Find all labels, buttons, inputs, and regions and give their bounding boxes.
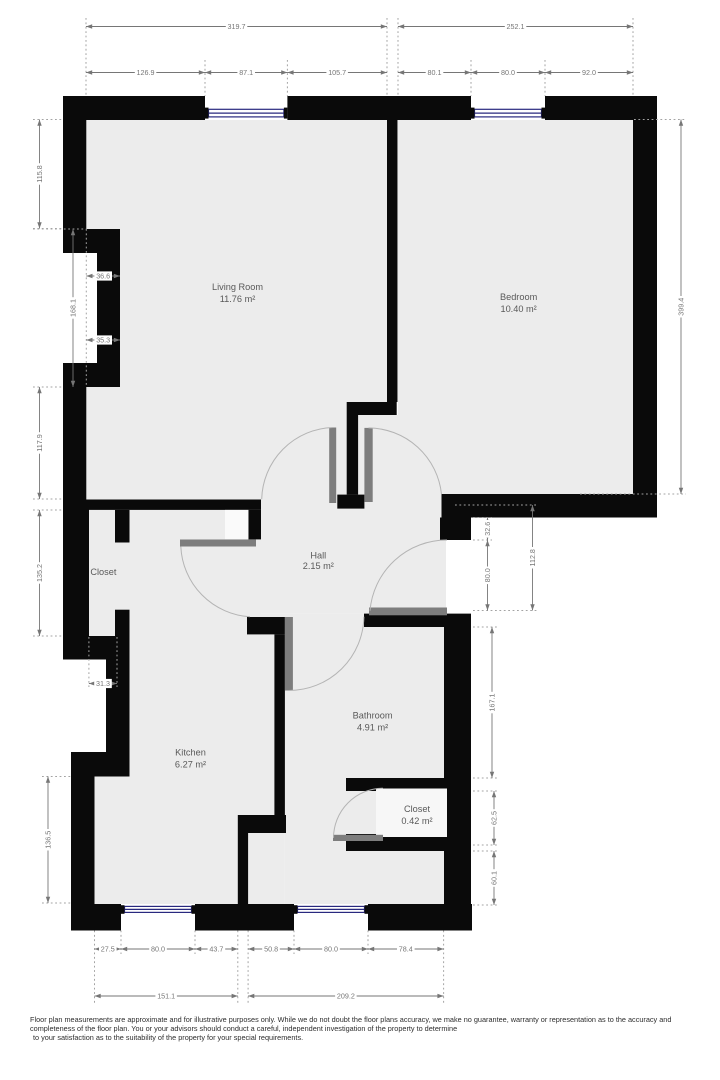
svg-text:167.1: 167.1 xyxy=(488,694,497,712)
svg-text:319.7: 319.7 xyxy=(228,22,246,31)
svg-text:80.0: 80.0 xyxy=(324,945,338,954)
svg-text:80.0: 80.0 xyxy=(483,568,492,582)
svg-text:117.9: 117.9 xyxy=(35,434,44,451)
svg-text:Closet: Closet xyxy=(90,567,116,577)
svg-text:115.8: 115.8 xyxy=(35,165,44,182)
svg-text:92.0: 92.0 xyxy=(582,68,596,77)
svg-text:135.2: 135.2 xyxy=(35,564,44,582)
svg-text:Floor plan measurements are ap: Floor plan measurements are approximate … xyxy=(30,1015,671,1024)
svg-text:Living Room: Living Room xyxy=(212,282,263,292)
svg-text:80.1: 80.1 xyxy=(428,68,442,77)
svg-text:4.91 m²: 4.91 m² xyxy=(357,723,388,733)
svg-text:60.1: 60.1 xyxy=(490,871,499,885)
svg-text:112.8: 112.8 xyxy=(528,549,537,566)
svg-text:completeness of the floor plan: completeness of the floor plan. You or y… xyxy=(30,1024,457,1033)
svg-text:105.7: 105.7 xyxy=(328,68,346,77)
svg-text:11.76 m²: 11.76 m² xyxy=(220,294,256,304)
svg-text:36.6: 36.6 xyxy=(96,272,110,281)
svg-text:126.9: 126.9 xyxy=(137,68,155,77)
svg-text:0.42 m²: 0.42 m² xyxy=(401,816,432,826)
svg-text:151.1: 151.1 xyxy=(157,992,175,1001)
svg-text:136.5: 136.5 xyxy=(44,831,53,849)
svg-text:Bedroom: Bedroom xyxy=(500,292,538,302)
svg-text:Kitchen: Kitchen xyxy=(175,747,206,757)
svg-text:209.2: 209.2 xyxy=(337,992,355,1001)
svg-text:43.7: 43.7 xyxy=(209,945,223,954)
svg-text:Hall: Hall xyxy=(310,550,326,560)
svg-text:62.5: 62.5 xyxy=(490,811,499,825)
svg-text:80.0: 80.0 xyxy=(151,945,165,954)
svg-text:78.4: 78.4 xyxy=(399,945,413,954)
svg-text:168.1: 168.1 xyxy=(69,299,78,317)
svg-text:31.3: 31.3 xyxy=(96,679,110,688)
svg-text:399.4: 399.4 xyxy=(677,298,686,316)
svg-text:252.1: 252.1 xyxy=(507,22,525,31)
svg-text:to your satisfaction as to the: to your satisfaction as to the suitabili… xyxy=(33,1033,303,1042)
svg-text:27.5: 27.5 xyxy=(101,945,115,954)
svg-text:Bathroom: Bathroom xyxy=(353,711,393,721)
svg-text:32.6: 32.6 xyxy=(483,522,492,536)
svg-text:Closet: Closet xyxy=(404,804,430,814)
svg-text:2.15 m²: 2.15 m² xyxy=(303,561,334,571)
svg-text:87.1: 87.1 xyxy=(239,68,253,77)
svg-text:35.3: 35.3 xyxy=(96,336,110,345)
svg-text:50.8: 50.8 xyxy=(264,945,278,954)
svg-text:80.0: 80.0 xyxy=(501,68,515,77)
svg-text:10.40 m²: 10.40 m² xyxy=(500,304,536,314)
svg-text:6.27 m²: 6.27 m² xyxy=(175,759,206,769)
